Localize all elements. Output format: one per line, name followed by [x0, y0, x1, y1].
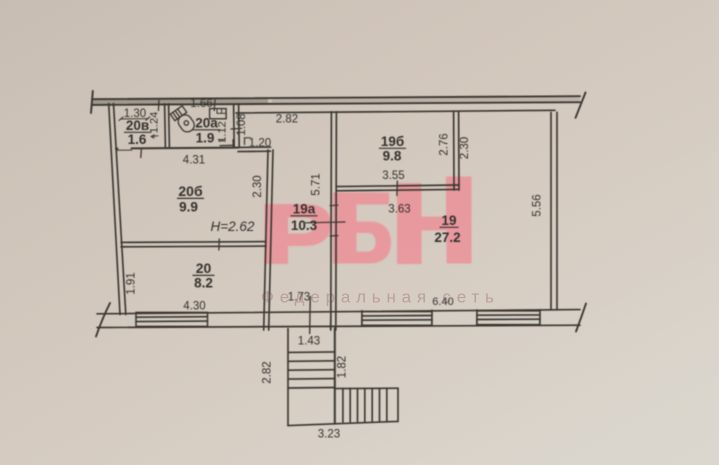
svg-text:H=2.62: H=2.62: [211, 219, 255, 234]
svg-text:4.31: 4.31: [183, 155, 205, 167]
svg-text:6.40: 6.40: [432, 296, 453, 308]
svg-text:20в: 20в: [126, 118, 149, 133]
svg-text:2.30: 2.30: [252, 175, 264, 197]
svg-text:1.24: 1.24: [149, 112, 161, 133]
svg-text:2.82: 2.82: [262, 361, 274, 383]
svg-text:1.91: 1.91: [126, 272, 138, 294]
svg-text:1.6: 1.6: [128, 132, 147, 147]
svg-text:3.55: 3.55: [382, 170, 404, 182]
svg-text:10.3: 10.3: [291, 218, 318, 233]
svg-text:4.30: 4.30: [183, 301, 205, 313]
svg-text:2.76: 2.76: [439, 133, 451, 155]
svg-text:9.8: 9.8: [383, 149, 402, 164]
svg-text:8.2: 8.2: [194, 276, 213, 291]
svg-text:19б: 19б: [381, 134, 404, 149]
svg-text:1.30: 1.30: [124, 108, 146, 120]
svg-text:19: 19: [441, 213, 456, 228]
svg-text:1.9: 1.9: [196, 131, 215, 146]
svg-text:1.66: 1.66: [190, 98, 212, 110]
svg-text:9.9: 9.9: [179, 200, 198, 215]
svg-text:1.20: 1.20: [249, 138, 271, 150]
svg-text:1.43: 1.43: [298, 336, 320, 348]
svg-text:19а: 19а: [293, 202, 316, 217]
svg-text:20а: 20а: [195, 116, 218, 131]
svg-text:3.63: 3.63: [388, 204, 410, 216]
svg-text:2.30: 2.30: [459, 137, 471, 159]
svg-text:1.82: 1.82: [337, 356, 349, 378]
svg-text:1.73: 1.73: [288, 292, 310, 304]
svg-text:27.2: 27.2: [434, 230, 460, 245]
svg-text:1.12: 1.12: [217, 121, 229, 142]
svg-text:1.08: 1.08: [236, 113, 248, 135]
svg-text:2.82: 2.82: [276, 114, 298, 126]
svg-text:5.56: 5.56: [532, 194, 544, 216]
svg-text:20б: 20б: [178, 183, 203, 199]
svg-text:5.71: 5.71: [311, 173, 323, 195]
svg-text:3.23: 3.23: [318, 429, 340, 441]
svg-text:20: 20: [196, 260, 212, 276]
